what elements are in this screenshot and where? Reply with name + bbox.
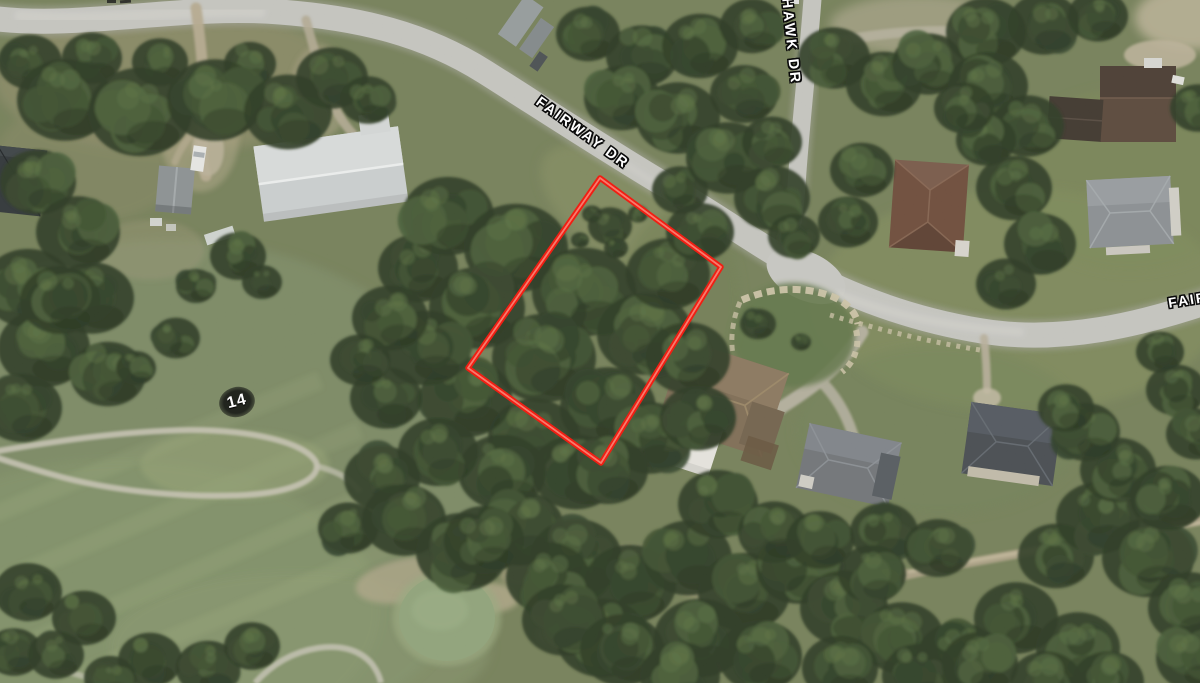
aerial-imagery (0, 0, 1200, 683)
grain-overlay (0, 0, 1200, 683)
golf-hole-14-number: 14 (225, 391, 249, 413)
aerial-map[interactable]: FAIRWAY DR HAWK DR FAIRWAY DR 14 (0, 0, 1200, 683)
clipped-label-fragment (107, 0, 116, 3)
